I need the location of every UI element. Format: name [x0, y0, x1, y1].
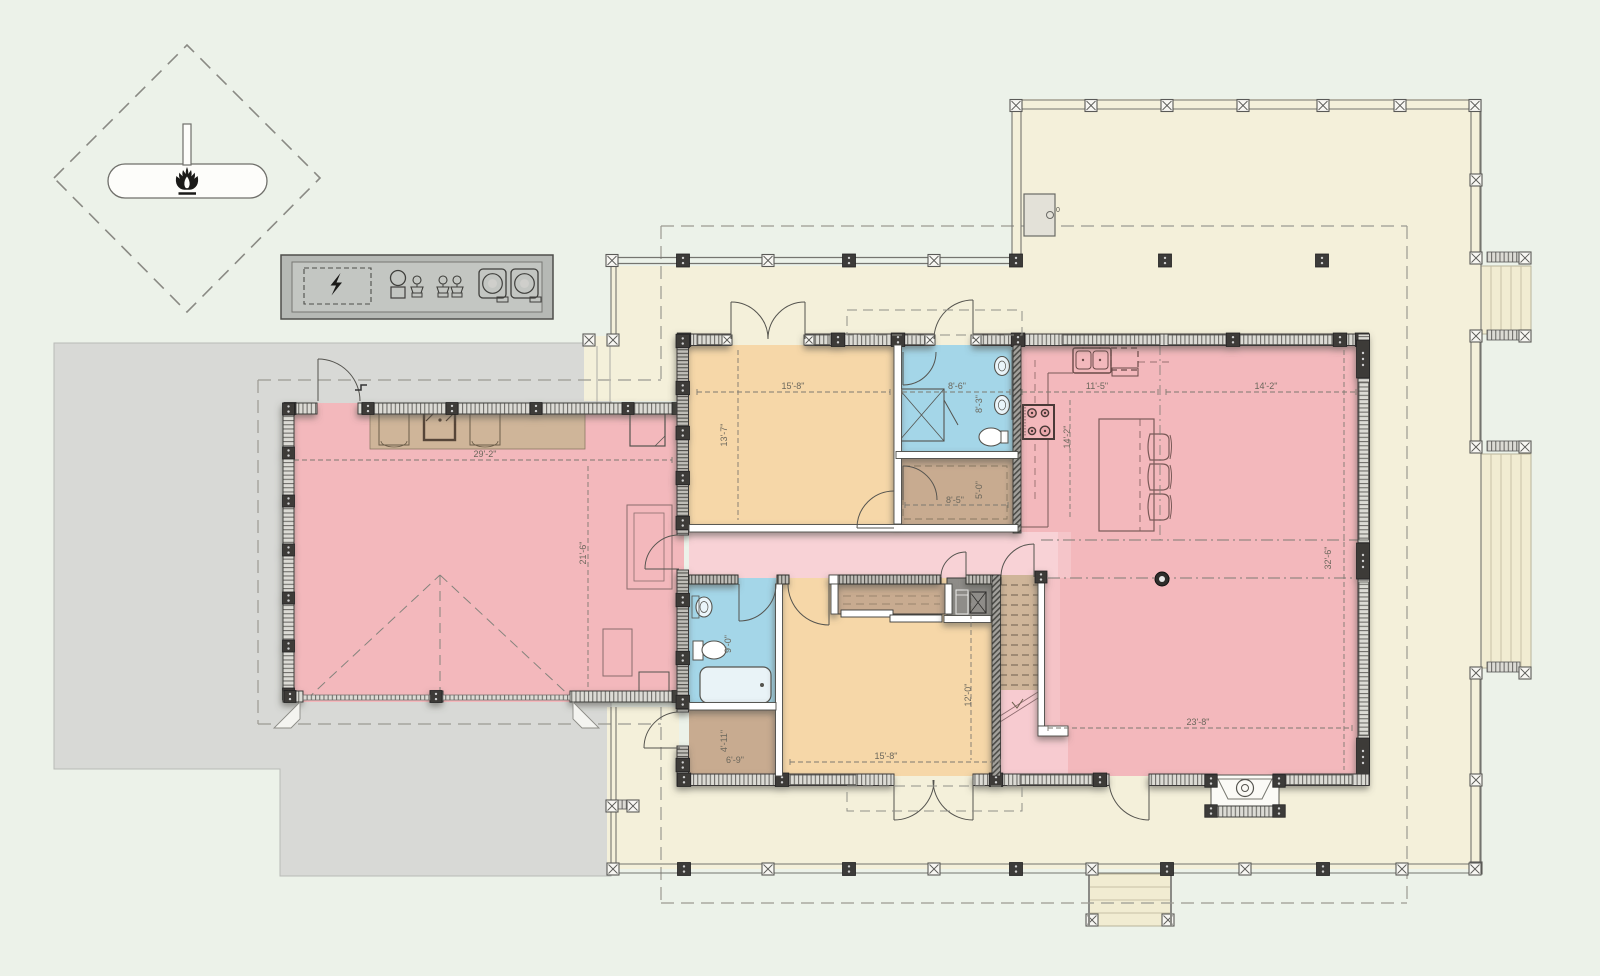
svg-text:8'-6": 8'-6": [948, 381, 966, 391]
svg-text:14'-2": 14'-2": [1255, 381, 1278, 391]
svg-text:5'-0": 5'-0": [974, 481, 984, 499]
svg-text:6'-9": 6'-9": [726, 755, 744, 765]
svg-text:32'-6": 32'-6": [1323, 547, 1333, 570]
svg-text:13'-7": 13'-7": [719, 424, 729, 447]
svg-text:0: 0: [1056, 207, 1060, 214]
svg-text:4'-11": 4'-11": [719, 730, 729, 752]
svg-text:21'-6": 21'-6": [578, 542, 588, 565]
svg-text:15'-8": 15'-8": [782, 381, 805, 391]
svg-text:23'-8": 23'-8": [1187, 717, 1210, 727]
svg-text:9'-0": 9'-0": [723, 635, 733, 653]
svg-text:29'-2": 29'-2": [474, 449, 497, 459]
svg-text:14'-2": 14'-2": [1062, 426, 1072, 449]
svg-text:8'-3": 8'-3": [974, 395, 984, 413]
svg-text:12'-0": 12'-0": [963, 684, 973, 707]
svg-text:8'-5": 8'-5": [946, 495, 964, 505]
svg-text:15'-8": 15'-8": [875, 751, 898, 761]
svg-text:11'-5": 11'-5": [1086, 381, 1108, 391]
